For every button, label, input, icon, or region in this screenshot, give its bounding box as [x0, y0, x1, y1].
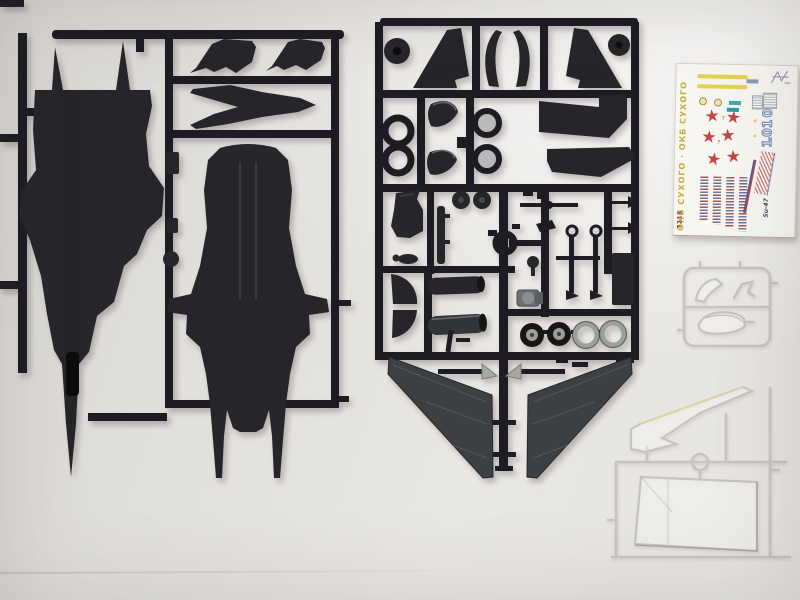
intake-trunk-upper: [539, 95, 627, 138]
nose-cone: [190, 85, 316, 129]
light-cover: [734, 282, 754, 298]
lens-ring-1: [475, 111, 499, 135]
vertical-fin-left: [413, 28, 469, 88]
splitter-plate-upper: [391, 274, 417, 304]
decal-maker-text: ОКБ СУХОГО · ОКБ СУХОГО: [676, 67, 688, 231]
decal-stencil-column-2: [712, 177, 721, 225]
decal-number-10-2: 10: [759, 107, 774, 129]
canard-left: [190, 39, 256, 73]
decal-footnote-1: 7: [722, 117, 725, 122]
decal-teal-bar-1: [729, 101, 741, 105]
intake-lip-left: [485, 30, 502, 87]
decal-aircraft-code: Su-47: [763, 198, 770, 218]
canard-right: [266, 39, 325, 71]
decal-stencil-column-3: [725, 177, 734, 227]
canopy-opening: [66, 352, 79, 396]
decal-stencil-column-1: [700, 176, 709, 220]
cockpit-rail: [437, 206, 450, 264]
decal-kit-number: 7215: [676, 210, 683, 229]
forward-swept-wing-left: [388, 357, 493, 478]
lower-fuselage-half: [167, 144, 329, 478]
equipment-panel: [612, 253, 634, 305]
decal-emblem: [769, 69, 792, 86]
wheel-ring-2: [600, 321, 627, 348]
intake-splitter-2: [427, 150, 457, 175]
intake-trunk-lower: [547, 147, 636, 177]
kit-contents-photo: ОКБ СУХОГО · ОКБ СУХОГО 10 . 10 ★ ★ ★ ★ …: [0, 0, 800, 600]
windscreen: [696, 279, 722, 302]
splitter-plate-lower: [392, 310, 417, 338]
missile-rail-left: [438, 364, 497, 379]
missile-rail-right: [506, 364, 565, 379]
stand-base: [635, 477, 757, 551]
pilot-figure: [393, 254, 419, 264]
small-block: [457, 137, 469, 148]
lens-ring-2: [475, 147, 499, 171]
intake-lip-right: [513, 30, 530, 87]
decal-hatch-stripes: [754, 151, 775, 196]
ejection-seat: [391, 190, 423, 238]
decal-star-3: ★: [701, 129, 718, 147]
decal-yellow-dot-1: [754, 119, 757, 122]
turbine-part: [517, 290, 543, 306]
decal-slate-bar: [746, 79, 758, 83]
decal-star-4: ★: [720, 127, 736, 145]
engine-nozzle-1: [427, 276, 486, 295]
engine-nozzle-2: [428, 313, 488, 335]
decal-star-6: ★: [725, 148, 742, 166]
decal-stripe-yellow-1: [698, 74, 748, 79]
decal-footnote-2: 7: [717, 141, 720, 146]
upper-fuselage-half: [20, 41, 164, 477]
stand-arm: [631, 387, 752, 452]
wheel-ring-1: [573, 322, 600, 349]
main-wheel-1: [520, 323, 544, 347]
intake-splitter-1: [428, 101, 458, 127]
decal-sheet: ОКБ СУХОГО · ОКБ СУХОГО 10 . 10 ★ ★ ★ ★ …: [672, 63, 799, 239]
decal-number-10-1: 10: [759, 126, 774, 148]
display-stand-sprue: [608, 387, 790, 557]
decal-star-5: ★: [704, 150, 722, 170]
decal-tactical-numbers: 10 . 10: [759, 102, 775, 148]
exhaust-ring-1: [385, 118, 411, 144]
detail-parts-sprue: [375, 18, 639, 478]
canopy: [699, 312, 754, 334]
wheel-disc-right: [608, 34, 630, 56]
forward-swept-wing-right: [527, 357, 632, 478]
decal-star-1: ★: [704, 108, 721, 127]
decal-badge-1: [699, 97, 707, 105]
small-wheel-pair: [452, 191, 491, 209]
main-wheel-2: [547, 322, 571, 346]
decal-yellow-dot-2: [753, 134, 756, 137]
exhaust-ring-2: [385, 147, 411, 173]
gear-strut-1: [566, 226, 579, 300]
wheel-disc-left: [384, 38, 410, 64]
fuselage-sprue: [0, 0, 351, 478]
clear-parts-sprue: [678, 262, 777, 346]
decal-stripe-yellow-2: [697, 84, 747, 89]
dome-part: [527, 256, 539, 276]
gear-strut-2: [590, 226, 603, 300]
